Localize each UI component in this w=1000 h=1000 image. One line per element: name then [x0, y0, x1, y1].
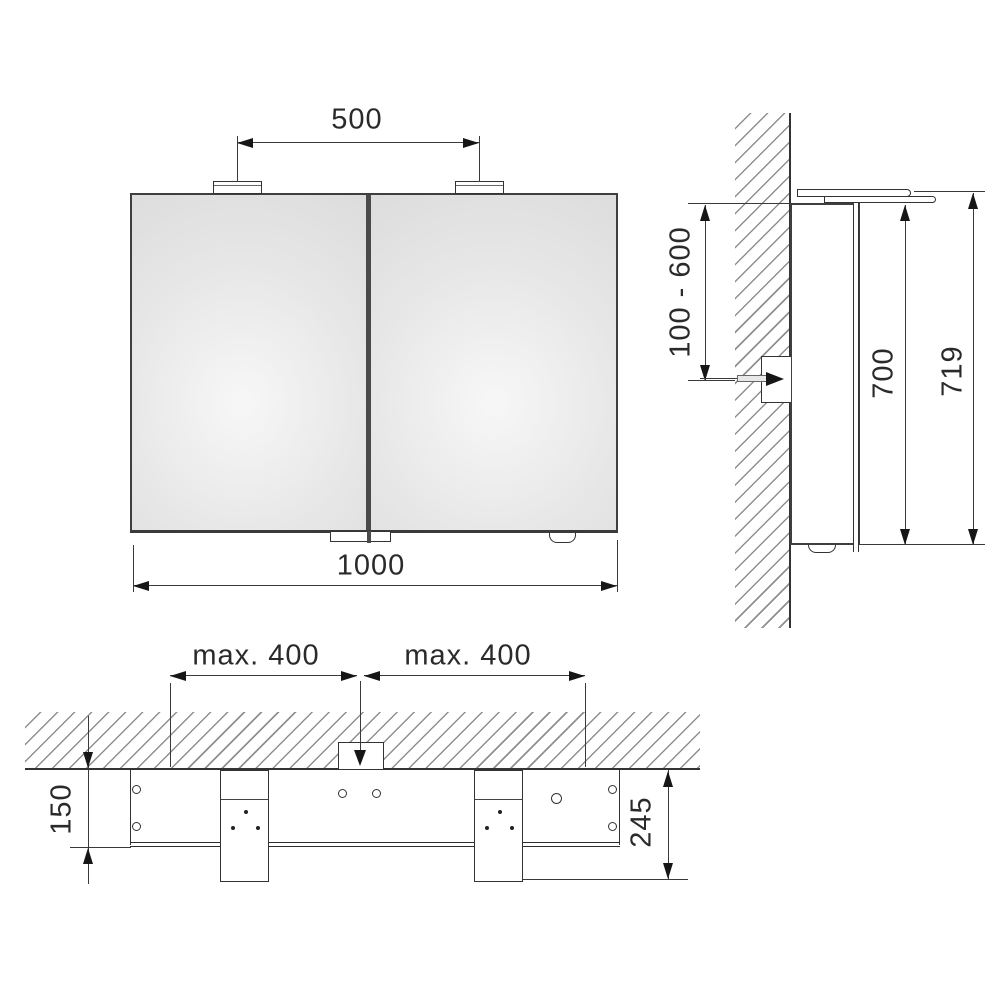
dim-700-label: 700	[868, 347, 901, 398]
dim-arrow-up-icon	[83, 848, 93, 864]
dim-500-label: 500	[331, 104, 382, 137]
cabinet-plan-body	[130, 770, 620, 845]
dim-arrow-down-icon	[83, 752, 93, 768]
dim-arrow-up-icon	[900, 205, 910, 221]
mirror-door-left	[132, 195, 366, 530]
dim-max400-left-line	[170, 675, 357, 676]
dim-100-600-ext-top	[688, 203, 790, 204]
led-dot	[485, 826, 489, 830]
dim-1000-line	[133, 585, 617, 586]
led-dot	[256, 826, 260, 830]
dim-arrow-right-icon	[463, 138, 479, 148]
screw-hole	[608, 822, 617, 831]
dim-arrow-up-icon	[968, 193, 978, 209]
dim-arrow-down-icon	[900, 529, 910, 545]
cabinet-front-body	[130, 193, 618, 533]
dim-arrow-right-icon	[601, 581, 617, 591]
dim-arrow-left-icon	[237, 138, 253, 148]
dim-100-600-line	[705, 205, 706, 381]
cable-line-plan	[360, 688, 361, 752]
dim-arrow-right-icon	[341, 671, 357, 681]
dim-arrow-up-icon	[700, 205, 710, 221]
screw-hole	[338, 789, 347, 798]
dim-max400-ext-left	[170, 683, 171, 767]
light-fixture-seam	[475, 799, 522, 800]
dim-arrow-left-icon	[170, 671, 186, 681]
dim-arrow-down-icon	[968, 529, 978, 545]
dim-245-label: 245	[626, 796, 659, 847]
dim-max400-left-label: max. 400	[192, 640, 319, 673]
dim-500-line	[237, 142, 479, 143]
led-dot	[498, 810, 502, 814]
dim-1000-label: 1000	[337, 550, 406, 583]
dim-719-ext-top	[914, 191, 985, 192]
dim-1000-ext-right	[617, 540, 618, 592]
dim-arrow-down-icon	[663, 863, 673, 879]
dim-150-ext-line	[70, 847, 131, 848]
light-lens-side	[824, 196, 936, 203]
dim-100-600-ext-bottom	[688, 380, 735, 381]
led-dot	[231, 826, 235, 830]
light-housing-side	[797, 189, 911, 197]
mirror-front-face-plan	[130, 842, 620, 847]
power-switch	[549, 533, 576, 543]
dim-arrow-right-icon	[569, 671, 585, 681]
dim-719-line	[973, 193, 974, 545]
light-fixture-right-plan	[474, 770, 523, 882]
screw-hole	[608, 785, 617, 794]
dim-719-label: 719	[937, 345, 970, 396]
dim-arrow-left-icon	[364, 671, 380, 681]
dim-max400-ext-right	[585, 683, 586, 767]
dim-max400-right-label: max. 400	[404, 640, 531, 673]
light-fixture-seam	[456, 185, 503, 186]
led-dot	[510, 826, 514, 830]
cable-plug-icon	[766, 372, 784, 386]
cabinet-side-body	[790, 203, 860, 545]
light-fixture-seam	[214, 185, 261, 186]
door-handle	[330, 531, 391, 542]
door-divider-extension	[367, 531, 371, 543]
screw-hole	[372, 789, 381, 798]
dim-245-ext-line	[523, 879, 688, 880]
light-fixture-left-front	[213, 181, 262, 194]
led-dot	[244, 810, 248, 814]
screw-hole	[132, 822, 141, 831]
light-fixture-seam	[221, 799, 268, 800]
technical-drawing-canvas: 500 1000 100 - 6	[0, 0, 1000, 1000]
dim-max400-right-line	[364, 675, 585, 676]
dim-arrow-up-icon	[663, 771, 673, 787]
cable-sleeve	[737, 375, 767, 382]
screw-hole	[132, 785, 141, 794]
cable-strain-relief-icon	[354, 750, 366, 766]
screw-hole	[551, 793, 562, 804]
light-fixture-left-plan	[220, 770, 269, 882]
mirror-door-side	[853, 203, 859, 552]
dim-100-600-label: 100 - 600	[665, 226, 698, 358]
dim-700-line	[905, 205, 906, 545]
dim-500-ext-right	[479, 136, 480, 182]
dim-150-label: 150	[46, 783, 79, 834]
power-switch-side	[808, 545, 836, 553]
mirror-door-right	[371, 195, 616, 530]
light-fixture-right-front	[455, 181, 504, 194]
side-bottom-ext-line	[858, 544, 985, 545]
dim-arrow-left-icon	[133, 581, 149, 591]
